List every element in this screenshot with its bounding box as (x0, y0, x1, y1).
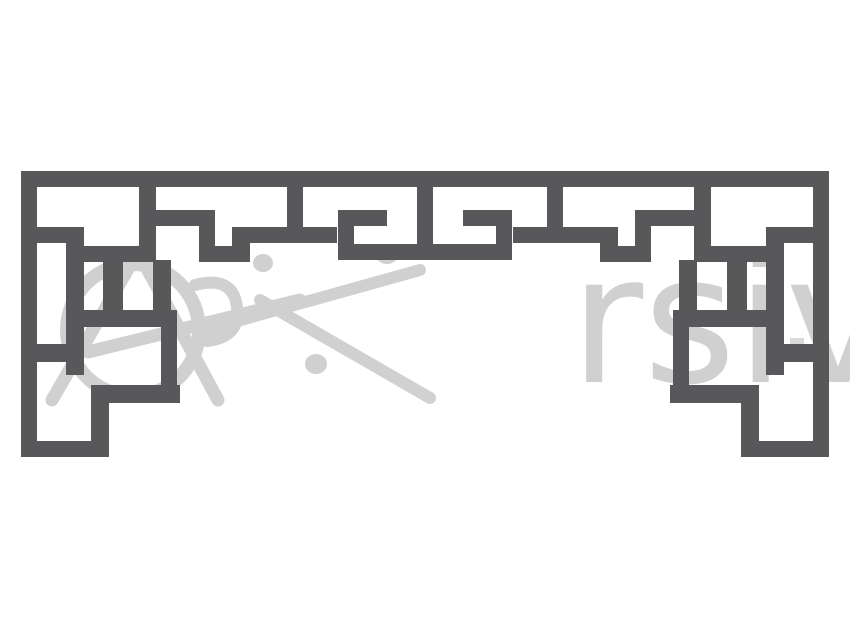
lattice-bar-w-riser (91, 385, 109, 457)
lattice-bar-w-riser-mirror (741, 385, 759, 457)
lattice-bar-v-stub (37, 344, 66, 362)
lattice-bar-hook-arm-mirror (463, 210, 512, 226)
lattice-bar-b-bar-mirror (513, 227, 618, 243)
lattice-illustration: rsiv (0, 0, 850, 630)
watermark-dot (305, 354, 327, 374)
lattice-bar-v-stub-mirror (784, 344, 813, 362)
lattice-bar-q-bar (66, 310, 177, 327)
lattice-bar-outer-left (21, 171, 37, 457)
lattice-bar-s-riser-mirror (679, 260, 697, 310)
lattice-bar-q-bar-mirror (673, 310, 784, 327)
lattice-bar-b-bar (232, 227, 337, 243)
lattice-bar-a-stem-mirror (547, 171, 563, 243)
watermark-dot (253, 254, 273, 272)
lattice-bar-s-riser (153, 260, 171, 310)
watermark-diagonal-2 (205, 270, 430, 398)
lattice-bar-p-divider (103, 262, 123, 310)
lattice-pattern-svg: rsiv (0, 0, 850, 630)
lattice-bar-outer-left-mirror (813, 171, 829, 457)
lattice-bar-center-stem-mirror (417, 171, 433, 260)
lattice-bar-a-stem (287, 171, 303, 243)
lattice-bar-hook-arm (338, 210, 387, 226)
lattice-bar-p-divider-mirror (727, 262, 747, 310)
